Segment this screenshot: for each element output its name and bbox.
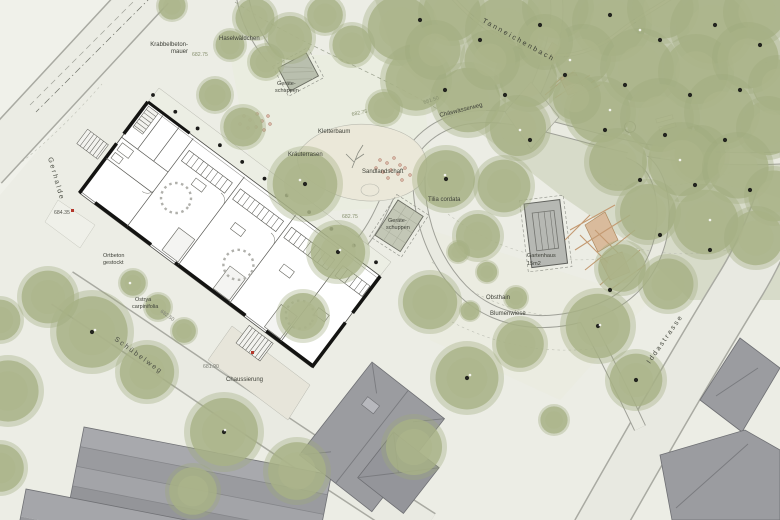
tree-trunk-dot: [443, 88, 447, 92]
tree-trunk-dot: [465, 376, 469, 380]
label-ortbeton-2: gestockt: [103, 260, 124, 266]
site-plan-canvas: Krabbelbeton- mauer Haselwäldchen 682.75…: [0, 0, 780, 520]
tree-trunk-dot: [608, 288, 612, 292]
label-krabbelbetonmauer-2: mauer: [171, 49, 188, 55]
tree-trunk-dot: [444, 177, 448, 181]
tree-trunk-dot: [303, 182, 307, 186]
tree: [492, 316, 548, 372]
tree: [459, 300, 481, 322]
tree: [17, 266, 79, 328]
tree: [485, 95, 551, 161]
entry-marker-west: [71, 209, 74, 212]
tree: [247, 43, 285, 81]
tree: [213, 28, 247, 62]
entry-marker-south: [251, 351, 254, 354]
label-elevation-684-35: 684.35: [54, 210, 70, 216]
label-ostrya-1: Ostrya: [135, 297, 152, 303]
label-geraeteschuppen-sued-2: schuppen: [386, 225, 410, 231]
tree: [549, 72, 601, 124]
label-ostrya-2: carpinifolia: [132, 304, 159, 310]
label-sandlandschaft: Sandlandschaft: [362, 169, 404, 175]
label-elevation-681-90: 681.90: [203, 364, 219, 370]
tree-trunk-dot: [608, 13, 612, 17]
tree-trunk-dot: [538, 23, 542, 27]
tree: [196, 76, 234, 114]
tree-trunk-dot: [563, 73, 567, 77]
tree: [475, 260, 499, 284]
label-blumenwiese: Blumenwiese: [490, 311, 526, 317]
tree: [220, 104, 266, 150]
label-elevation-682-75-nord: 682.75: [192, 52, 208, 58]
tree-trunk-dot: [723, 138, 727, 142]
tree-trunk-dot: [503, 93, 507, 97]
tree: [538, 404, 570, 436]
tree-trunk-dot: [418, 18, 422, 22]
label-chaussierung: Chaussierung: [226, 377, 263, 383]
tree: [446, 240, 470, 264]
label-geraeteschuppen-nord-2: schuppen: [275, 88, 299, 94]
tree-trunk-dot: [658, 38, 662, 42]
tree-trunk-dot: [708, 248, 712, 252]
label-obsthain: Obsthain: [486, 295, 510, 301]
tree-trunk-dot: [758, 43, 762, 47]
tree-trunk-dot: [693, 183, 697, 187]
label-tilia-cordata: Tilia cordata: [428, 197, 461, 203]
tree: [329, 22, 375, 68]
tree-trunk-dot: [634, 378, 638, 382]
tree-trunk-dot: [603, 128, 607, 132]
label-geraeteschuppen-nord-1: Geräte-: [277, 81, 296, 87]
tree-trunk-dot: [90, 330, 94, 334]
tree-trunk-dot: [713, 23, 717, 27]
tree: [170, 317, 198, 345]
tree-trunk-dot: [478, 38, 482, 42]
tree: [405, 20, 465, 80]
tree: [276, 289, 330, 343]
tree-trunk-dot: [623, 83, 627, 87]
label-gartenhaus-1: Gartenhaus: [527, 253, 556, 259]
tree-trunk-dot: [658, 233, 662, 237]
site-plan-drawing: Krabbelbeton- mauer Haselwäldchen 682.75…: [0, 0, 780, 520]
label-krabbelbetonmauer-1: Krabbelbeton-: [150, 42, 188, 48]
tree-trunk-dot: [748, 188, 752, 192]
tree: [118, 268, 148, 298]
tree: [263, 437, 331, 505]
tree-trunk-dot: [738, 88, 742, 92]
label-ortbeton-1: Ortbeton: [103, 253, 124, 259]
label-elevation-682-75-schuppen: 682.75: [342, 214, 358, 220]
tree: [398, 270, 462, 334]
label-haselwaeldchen: Haselwäldchen: [219, 36, 260, 42]
tree-trunk-dot: [663, 133, 667, 137]
label-kletterbaum: Kletterbaum: [318, 129, 350, 135]
label-gartenhaus-2: 15m2: [527, 261, 541, 267]
tree: [165, 463, 221, 519]
tree-trunk-dot: [528, 138, 532, 142]
tree-trunk-dot: [688, 93, 692, 97]
tree-trunk-dot: [638, 178, 642, 182]
label-geraeteschuppen-sued-1: Geräte-: [388, 218, 407, 224]
tree: [638, 254, 698, 314]
tree: [473, 155, 535, 217]
tree: [365, 89, 403, 127]
label-kraeuterrasen: Kräuterrasen: [288, 152, 323, 158]
tree: [381, 414, 447, 480]
